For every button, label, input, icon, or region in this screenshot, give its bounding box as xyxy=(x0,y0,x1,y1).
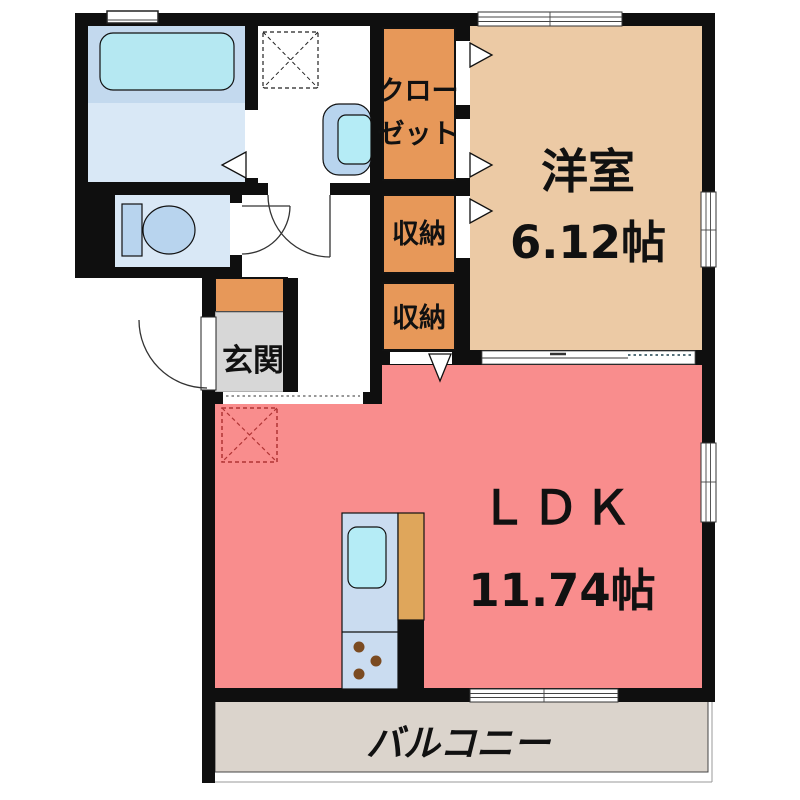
bathroom-floor-lower xyxy=(88,103,245,182)
stove-burner-icon xyxy=(354,642,365,653)
ldk-label: ＬＤＫ xyxy=(480,481,636,536)
entrance-label: 玄関 xyxy=(222,343,284,379)
window-bathroom-top xyxy=(107,11,158,23)
window-western-top xyxy=(478,12,622,26)
window-ldk-balcony xyxy=(470,689,618,702)
wall-washroom-bottom-right xyxy=(330,183,372,195)
toilet-door-opening xyxy=(230,203,242,255)
bathroom-door-opening xyxy=(245,110,258,178)
closet-label-line2: ゼット xyxy=(378,119,459,150)
wall-western-right xyxy=(702,13,715,365)
entrance-door-leaf xyxy=(201,317,216,390)
bathtub xyxy=(100,33,234,90)
balcony-label: バルコニー xyxy=(366,722,551,765)
washbasin xyxy=(323,104,371,175)
floor-plan-canvas: 洋室 6.12帖 ＬＤＫ 11.74帖 クロー ゼット 収納 収納 玄関 バルコ… xyxy=(0,0,800,800)
toilet-bowl xyxy=(143,206,195,254)
wall-washroom-bottom-left xyxy=(220,183,270,195)
wall-toilet-bottom xyxy=(75,267,242,278)
ldk-size-label: 11.74帖 xyxy=(468,564,655,617)
western-room-size-label: 6.12帖 xyxy=(510,216,666,269)
stove-burner-icon xyxy=(354,669,365,680)
window-ldk-right xyxy=(701,443,716,522)
toilet xyxy=(122,204,195,256)
wall-ldk-bottom xyxy=(202,688,715,702)
storage-upper-label: 収納 xyxy=(392,218,446,250)
stove-burner-icon xyxy=(371,656,382,667)
closet-label-line1: クロー xyxy=(378,76,459,107)
wall-ldk-right xyxy=(702,364,715,702)
wall-entrance-right xyxy=(283,278,298,393)
hall-ldk-sliding-door xyxy=(223,392,363,404)
toilet-tank xyxy=(122,204,142,256)
storage-upper-door-opening xyxy=(456,196,470,258)
kitchen-sink xyxy=(348,527,386,588)
wall-balcony-left xyxy=(202,688,215,783)
storage-lower-label: 収納 xyxy=(392,302,446,334)
washroom-door-opening xyxy=(268,183,330,195)
wall-kitchen-stub xyxy=(398,620,424,689)
kitchen-counter xyxy=(398,513,424,620)
entrance-shoe-cabinet xyxy=(215,278,287,312)
window-western-right xyxy=(701,192,716,267)
western-room-label: 洋室 xyxy=(541,145,635,200)
wall-toilet-left xyxy=(75,195,115,267)
floor-plan: 洋室 6.12帖 ＬＤＫ 11.74帖 クロー ゼット 収納 収納 玄関 バルコ… xyxy=(0,0,800,800)
